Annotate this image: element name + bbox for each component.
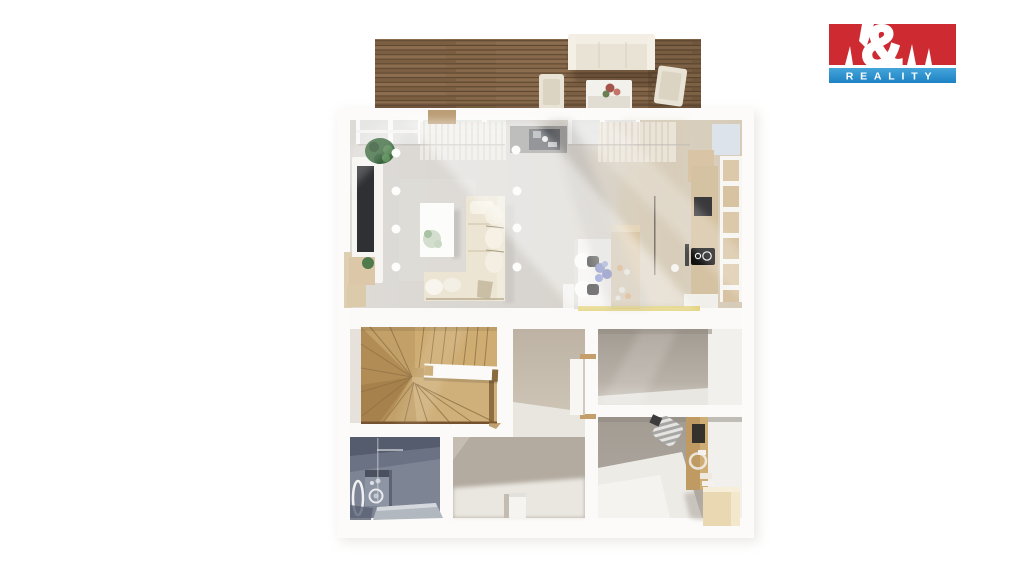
svg-text:REALITY: REALITY [846, 71, 939, 83]
